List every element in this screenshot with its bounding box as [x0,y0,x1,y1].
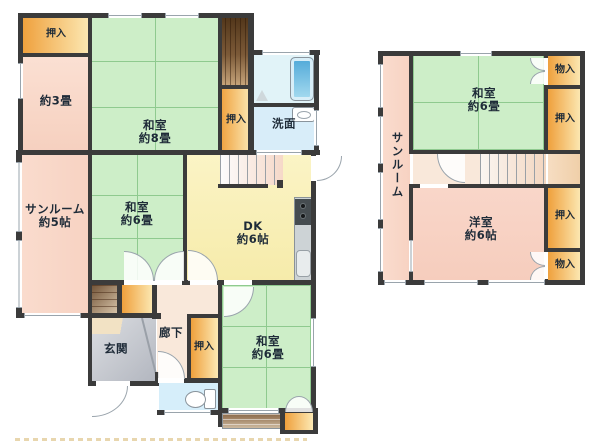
toilet-bowl [185,391,206,408]
room-label-storage-top-2f: 物入 [555,64,575,75]
stove [295,199,312,225]
room-label-washitsu-6-center: 和室 約6畳 [121,201,154,227]
sliding-door [256,150,302,155]
wall [252,103,318,107]
wall [248,13,254,154]
wall [218,13,222,154]
window [314,110,319,146]
bathtub [290,57,314,101]
room-label-hallway: 廊下 [159,326,183,339]
kitchen-sink [296,250,311,277]
window [460,51,492,56]
wall [277,180,283,188]
window [16,162,22,232]
stairs-2f-head [548,154,581,184]
ground-line [15,438,307,441]
veranda [222,413,282,429]
room-label-entrance: 玄関 [104,342,128,355]
wall [187,314,191,383]
stove-burner [301,214,305,218]
stairs-2f [480,154,546,184]
window [378,228,383,272]
wall [88,13,92,385]
wall [544,248,585,252]
room-closet-small [122,285,153,315]
room-label-youshitsu-2f: 洋室 約6帖 [465,216,498,242]
entrance-steps [90,285,118,315]
room-label-sunroom: サンルーム 約5帖 [25,203,85,229]
room-hallway-upper [157,285,218,315]
window [384,280,406,285]
wall [218,85,251,89]
room-label-washitsu-8: 和室 約8畳 [139,119,172,145]
window [378,64,383,108]
window [18,63,23,99]
window [262,50,310,55]
door-arc-back-door [317,156,342,181]
window [228,408,279,413]
basin-bowl [297,111,311,119]
window [165,13,199,18]
window [164,410,211,415]
wall [409,51,413,154]
stairs-upper-flight [220,15,251,87]
entrance-step-wedge [91,318,135,334]
room-label-sunroom-2f: サンルーム [390,131,403,199]
room-label-3jo: 約3畳 [40,94,73,107]
wall [117,283,122,315]
room-label-closet-mid: 押入 [226,114,246,125]
room-label-dk: DK 約6帖 [237,220,270,246]
floor-plan-1f: 押入 約3畳 和室 約8畳 押入 洗面 サンルーム 約5帖 和室 約6畳 DK … [0,0,350,444]
floor-plan-image: 押入 約3畳 和室 約8畳 押入 洗面 サンルーム 約5帖 和室 約6畳 DK … [0,0,604,444]
window [424,280,478,285]
room-label-closet-top-2f: 押入 [555,113,575,124]
stove-burner [301,204,305,208]
room-sunroom-1f [18,152,90,315]
room-label-washitsu-2f: 和室 約6畳 [468,87,501,113]
room-label-storage-bottom-2f: 物入 [555,259,575,270]
window [311,318,316,367]
wall [218,283,222,427]
window [378,172,383,220]
room-label-washroom: 洗面 [272,117,296,130]
window [108,13,142,18]
room-closet-south [285,412,313,430]
bath-door-mark [256,90,268,101]
door-arc-entrance [92,386,128,417]
wall [218,184,268,188]
wall [409,150,585,154]
room-label-closet-bottom-2f: 押入 [555,210,575,221]
room-label-closet-top-left: 押入 [46,28,66,39]
stairs-lower-flight [220,154,283,185]
window [488,280,545,285]
window [409,240,413,272]
window [24,313,81,318]
door-opening [311,156,316,181]
wall [152,283,157,315]
wall [20,53,90,57]
wall [544,85,585,89]
door-opening [420,184,448,188]
window [16,240,22,308]
door-opening [224,280,252,285]
room-label-washitsu-6-south: 和室 約6畳 [252,335,285,361]
room-label-closet-hall: 押入 [194,341,214,352]
window [378,116,383,164]
